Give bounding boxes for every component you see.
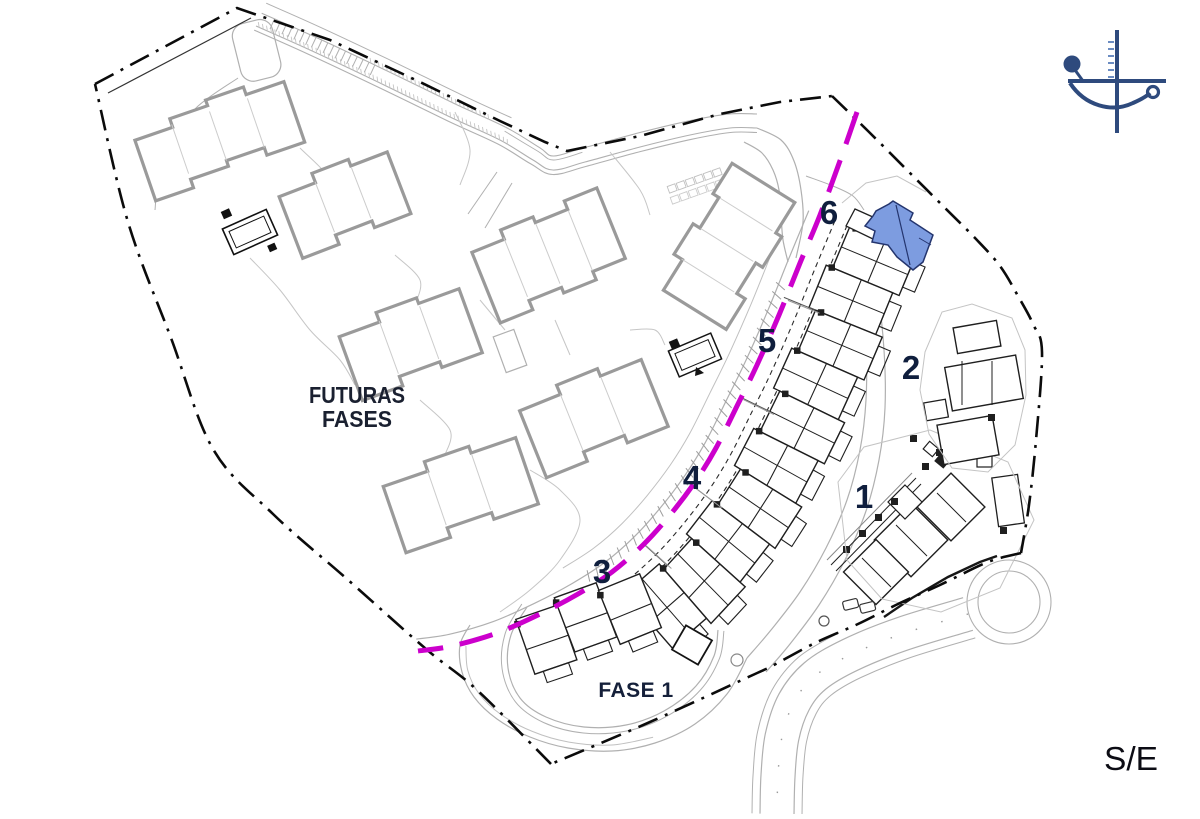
svg-text:1: 1	[855, 478, 873, 515]
svg-text:FUTURAS: FUTURAS	[309, 382, 405, 408]
svg-text:4: 4	[683, 459, 702, 496]
svg-text:2: 2	[902, 349, 920, 386]
svg-text:FASES: FASES	[322, 406, 392, 432]
svg-text:S/E: S/E	[1104, 740, 1158, 777]
svg-text:FASE 1: FASE 1	[598, 679, 673, 702]
svg-text:3: 3	[593, 553, 611, 590]
svg-text:5: 5	[758, 322, 776, 359]
svg-text:6: 6	[820, 194, 838, 231]
